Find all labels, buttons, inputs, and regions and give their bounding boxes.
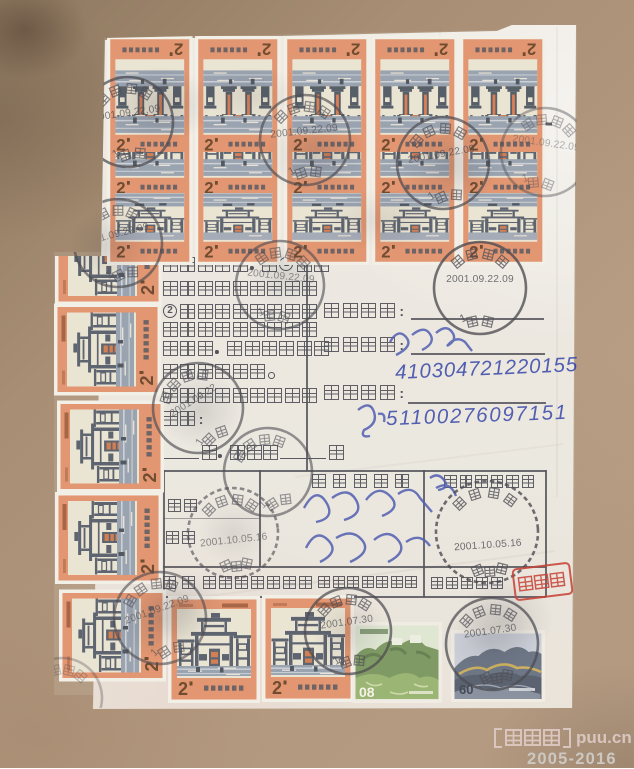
svg-text:2001.09.22.09: 2001.09.22.09 — [270, 123, 339, 141]
svg-text:1: 1 — [104, 268, 116, 281]
svg-text:2001.07.30: 2001.07.30 — [463, 622, 517, 640]
svg-text:2001.10.05.16: 2001.10.05.16 — [454, 538, 522, 554]
svg-text:1: 1 — [331, 654, 343, 667]
svg-text:2001.07.30: 2001.07.30 — [320, 613, 374, 631]
svg-text:2001.09.22.09: 2001.09.22.09 — [446, 274, 514, 285]
svg-text:2001.10.05.16: 2001.10.05.16 — [200, 531, 269, 549]
svg-text:2001.09.22: 2001.09.22 — [168, 382, 219, 419]
svg-text:1: 1 — [286, 165, 297, 178]
svg-text:1: 1 — [110, 147, 122, 160]
svg-text:2001.09.22.09: 2001.09.22.09 — [512, 133, 581, 153]
svg-text:2001.09.22.09: 2001.09.22.09 — [247, 268, 316, 286]
